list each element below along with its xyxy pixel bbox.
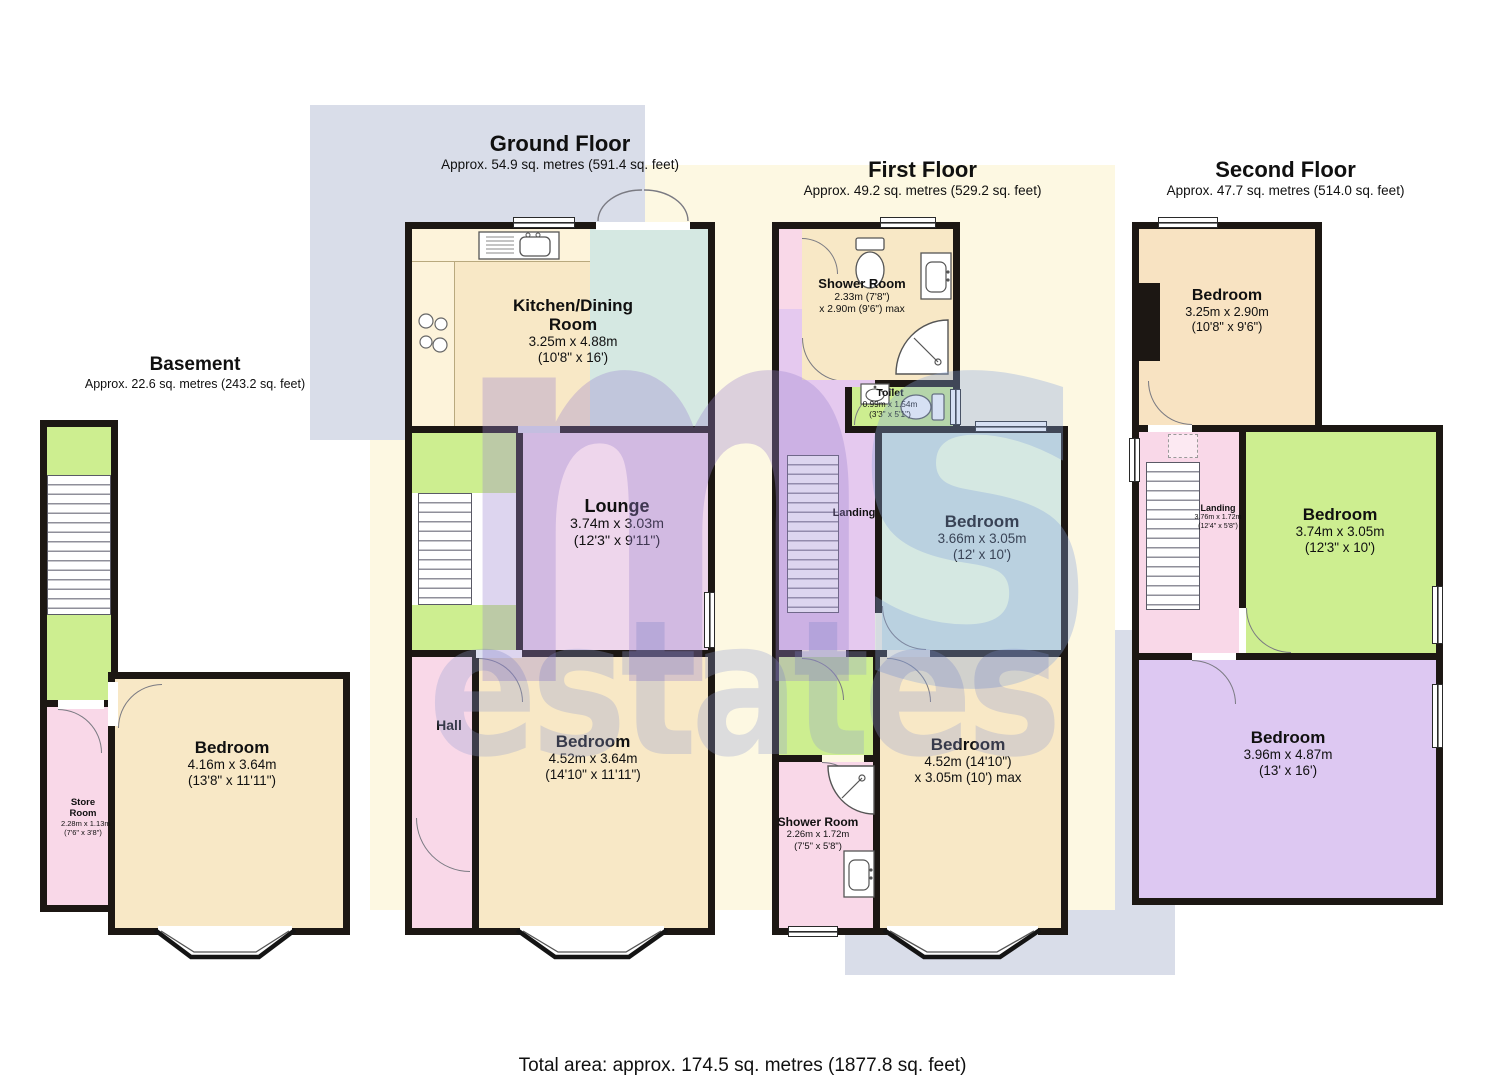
- wall: [779, 755, 822, 762]
- window: [1158, 217, 1218, 228]
- sink-icon: [920, 252, 952, 300]
- wall: [522, 650, 708, 657]
- window: [513, 217, 575, 228]
- window: [1129, 438, 1140, 482]
- floorplan-layer: Bedroom 4.16m x 3.64m (13'8" x 11'11") S…: [0, 0, 1485, 1080]
- wall: [846, 650, 887, 657]
- room-label: Hall: [426, 718, 472, 734]
- room-name: Bedroom: [1203, 728, 1373, 747]
- hob-icon: [416, 310, 450, 358]
- room-label: Lounge 3.74m x 3.03m (12'3" x 9'11"): [537, 496, 697, 550]
- room-name: Landing: [826, 507, 882, 519]
- wall: [930, 650, 1061, 657]
- sink-icon: [843, 850, 875, 898]
- room-label: Bedroom 3.96m x 4.87m (13' x 16'): [1203, 728, 1373, 779]
- french-doors-icon: [596, 188, 690, 222]
- first-stairs: [787, 455, 839, 613]
- loft-hatch: [1168, 434, 1198, 458]
- wall: [412, 426, 518, 433]
- room-name: Shower Room: [817, 277, 907, 292]
- first-closet: [779, 229, 802, 309]
- wall: [412, 928, 522, 935]
- wall: [560, 426, 708, 433]
- first-landing-upper: [779, 309, 802, 380]
- room-label: Store Room 2.28m x 1.13m (7'6" x 3'8"): [61, 798, 105, 837]
- window: [950, 389, 961, 425]
- room-name: Bedroom: [1152, 287, 1302, 305]
- wall: [864, 755, 880, 762]
- room-name: Hall: [426, 718, 472, 734]
- window: [1432, 684, 1443, 748]
- wall: [405, 222, 412, 935]
- door-opening: [58, 700, 104, 709]
- room-label: Toilet 0.99m x 1.54m (3'3" x 5'1"): [850, 388, 930, 420]
- door-opening: [476, 650, 522, 658]
- wall: [472, 657, 479, 928]
- room-name: Bedroom: [132, 738, 332, 757]
- wall: [1139, 653, 1192, 660]
- room-name: Toilet: [850, 388, 930, 400]
- room-name: Lounge: [537, 496, 697, 516]
- wall: [845, 426, 953, 433]
- wall: [516, 433, 523, 650]
- window: [880, 217, 936, 228]
- room-label: Kitchen/Dining Room 3.25m x 4.88m (10'8"…: [498, 296, 648, 366]
- room-label: Bedroom 3.66m x 3.05m (12' x 10'): [902, 512, 1062, 563]
- kitchen-sink-icon: [478, 231, 560, 260]
- wall: [1139, 425, 1148, 432]
- room-label: Bedroom 4.52m (14'10") x 3.05m (10') max: [883, 735, 1053, 786]
- room-name: Bedroom: [503, 732, 683, 751]
- room-name: Bedroom: [1260, 505, 1420, 524]
- window: [975, 421, 1047, 432]
- wall: [663, 928, 708, 935]
- basement-landing-top: [47, 427, 111, 475]
- window: [704, 592, 715, 648]
- wall: [1436, 425, 1443, 905]
- room-name: Landing: [1186, 503, 1250, 513]
- door-opening: [108, 682, 118, 726]
- shower-icon: [894, 318, 950, 376]
- ground-hall: [412, 657, 472, 928]
- room-label: Landing 3.76m x 1.72m (12'4" x 5'8"): [1186, 503, 1250, 530]
- room-label: Bedroom 3.74m x 3.05m (12'3" x 10'): [1260, 505, 1420, 556]
- room-name: Store Room: [61, 798, 105, 819]
- ground-stairs: [418, 493, 472, 605]
- room-name: Kitchen/Dining Room: [498, 296, 648, 334]
- room-name: Bedroom: [883, 735, 1053, 754]
- shower-icon: [826, 764, 876, 816]
- room-label: Bedroom 4.16m x 3.64m (13'8" x 11'11"): [132, 738, 332, 789]
- second-stairs: [1146, 462, 1200, 610]
- wall: [1236, 653, 1436, 660]
- room-label: Landing: [826, 507, 882, 519]
- bay-window: [153, 928, 297, 961]
- french-door-opening: [596, 222, 690, 230]
- basement-landing-mid: [47, 615, 111, 700]
- room-name: Bedroom: [902, 512, 1062, 531]
- bay-window: [515, 928, 669, 961]
- room-label: Bedroom 3.25m x 2.90m (10'8" x 9'6"): [1152, 287, 1302, 335]
- ground-stair-landing-low: [412, 605, 516, 650]
- wall: [875, 433, 882, 613]
- wall: [1315, 222, 1322, 432]
- bay-window: [882, 928, 1042, 961]
- basement-stairs: [47, 475, 111, 615]
- wall: [1192, 425, 1436, 432]
- wall: [779, 650, 802, 657]
- window: [1432, 586, 1443, 644]
- room-label: Shower Room 2.33m (7'8") x 2.90m (9'6") …: [817, 277, 907, 316]
- room-label: Shower Room 2.26m x 1.72m (7'5" x 5'8"): [773, 816, 863, 852]
- window: [788, 926, 838, 937]
- wall: [1132, 898, 1443, 905]
- room-label: Bedroom 4.52m x 3.64m (14'10" x 11'11"): [503, 732, 683, 783]
- wall: [1061, 426, 1068, 935]
- room-name: Shower Room: [773, 816, 863, 829]
- wall: [708, 222, 715, 935]
- wall: [412, 650, 476, 657]
- ground-stair-landing: [412, 433, 516, 493]
